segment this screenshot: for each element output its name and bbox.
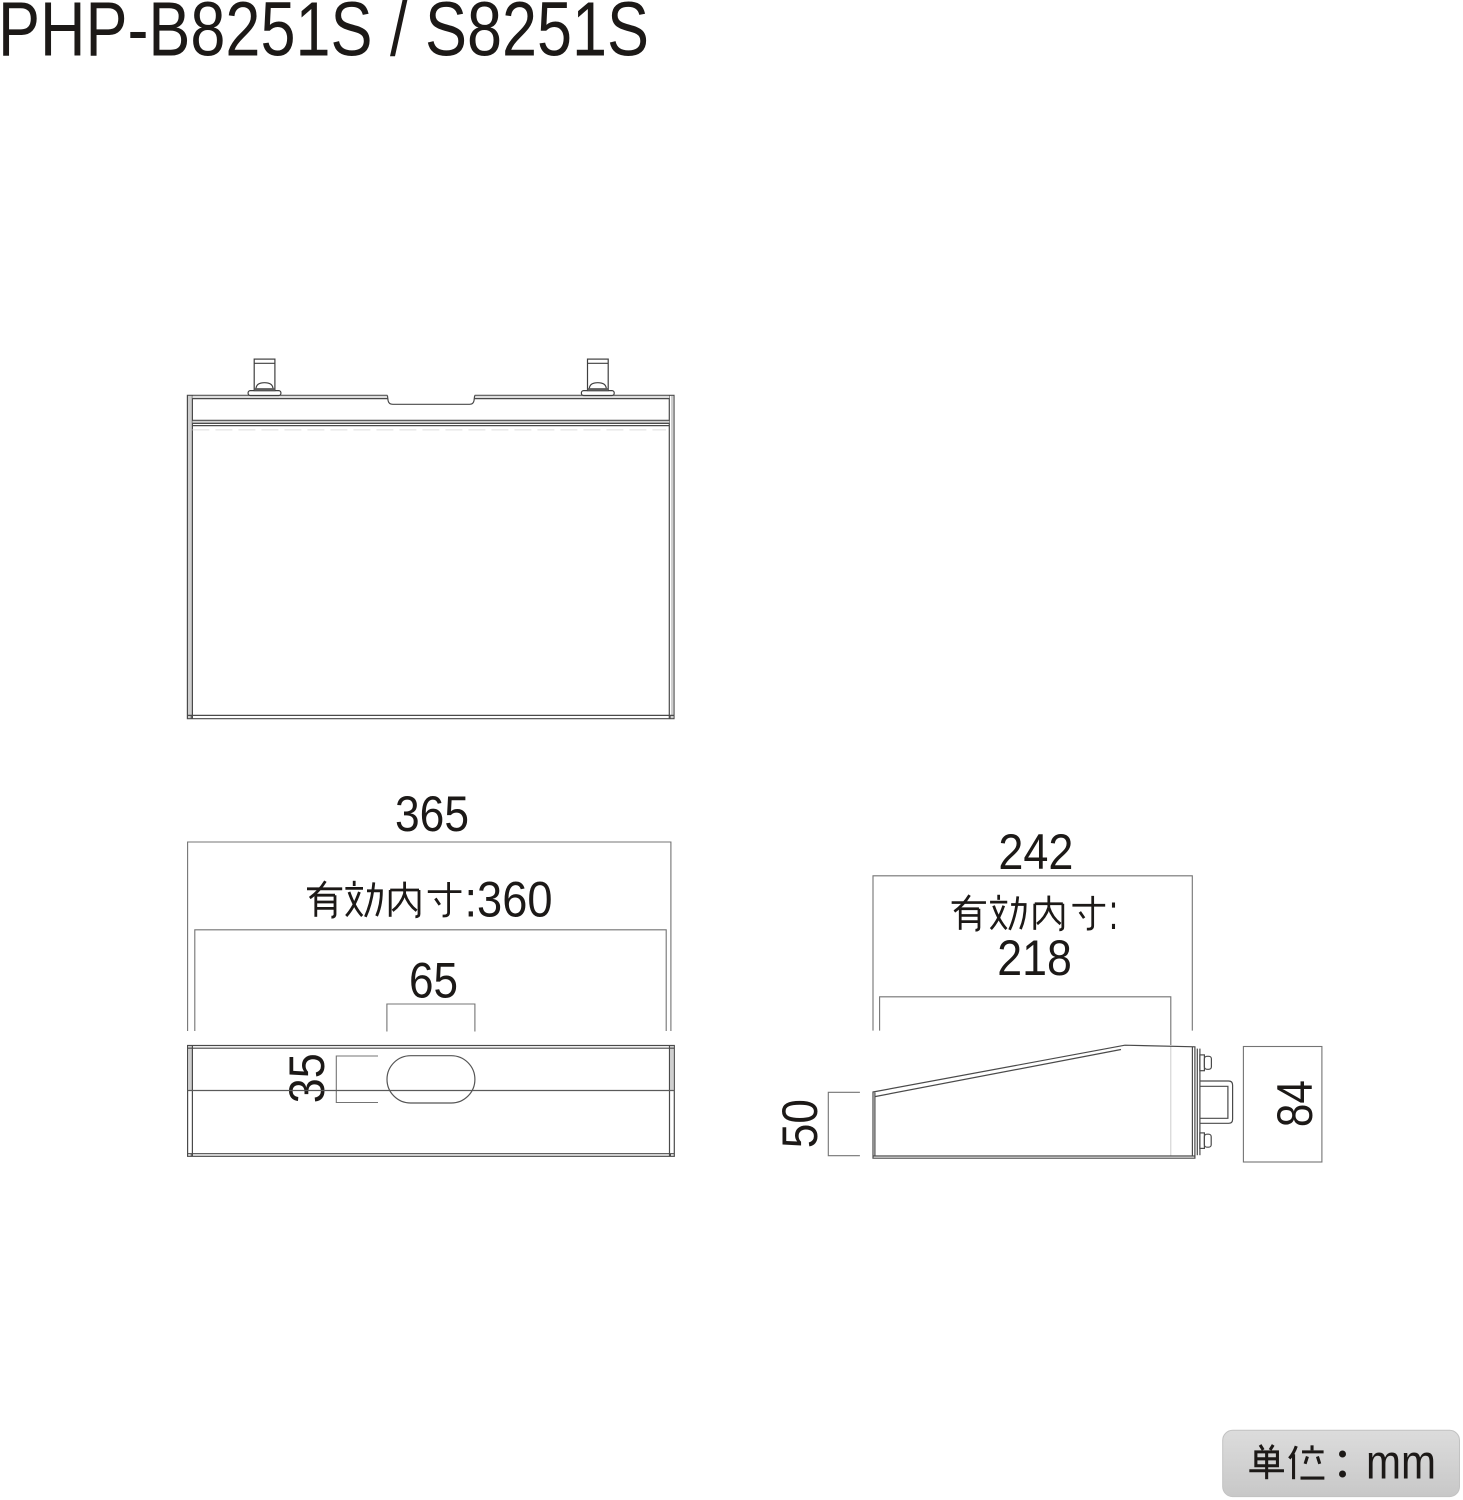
svg-text:365: 365 [395,786,469,842]
svg-text:84: 84 [1267,1080,1323,1127]
svg-text:242: 242 [998,824,1073,880]
svg-text::360: :360 [465,872,553,928]
svg-text:mm: mm [1366,1437,1436,1490]
svg-text:50: 50 [772,1099,828,1148]
svg-text:65: 65 [409,953,458,1009]
svg-text:35: 35 [279,1053,335,1103]
svg-text:218: 218 [997,930,1072,986]
svg-text:PHP-B8251S / S8251S: PHP-B8251S / S8251S [0,0,649,73]
svg-text::: : [1109,884,1118,940]
